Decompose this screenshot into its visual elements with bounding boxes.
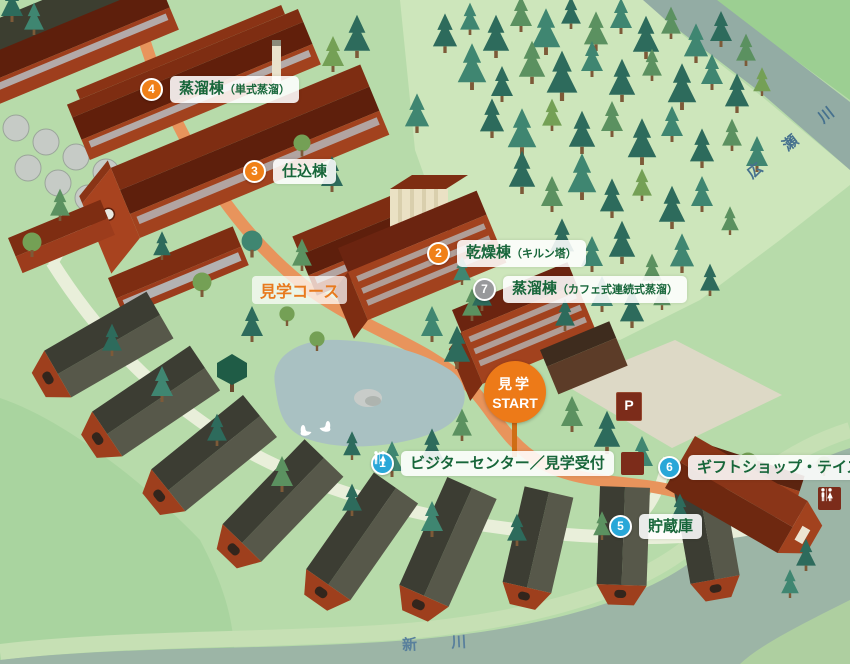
marker-7-coffey-still[interactable]: 7 蒸溜棟（カフェ式連続式蒸溜）	[473, 276, 687, 303]
marker-2-label: 乾燥棟（キルン塔）	[457, 240, 586, 267]
marker-4-label: 蒸溜棟（単式蒸溜）	[170, 76, 299, 103]
restroom-icon	[621, 452, 644, 475]
marker-3-mash-house[interactable]: 3 仕込棟	[243, 158, 336, 185]
parking-icon: P	[616, 392, 642, 421]
marker-4-number: 4	[140, 78, 163, 101]
marker-7-number: 7	[473, 278, 496, 301]
marker-2-number: 2	[427, 242, 450, 265]
marker-6-number: 6	[658, 456, 681, 479]
marker-3-label: 仕込棟	[273, 159, 336, 184]
river-label-hirose: 広 瀬 川	[742, 94, 848, 183]
start-label-line2: START	[484, 395, 546, 411]
marker-6-gift-shop[interactable]: 6 ギフトショップ・テイスティングバー	[658, 454, 850, 481]
start-label-line1: 見学	[484, 374, 546, 394]
marker-5-label: 貯蔵庫	[639, 514, 702, 539]
marker-4-still-house[interactable]: 4 蒸溜棟（単式蒸溜）	[140, 76, 299, 103]
marker-2-kiln[interactable]: 2 乾燥棟（キルン塔）	[427, 240, 586, 267]
restroom-icon	[818, 487, 841, 510]
tour-course-label: 見学コース	[252, 276, 347, 304]
marker-1-visitor-center[interactable]: 1 ビジターセンター／見学受付	[371, 450, 644, 477]
marker-6-label: ギフトショップ・テイスティングバー	[688, 455, 850, 480]
marker-7-label: 蒸溜棟（カフェ式連続式蒸溜）	[503, 276, 687, 303]
label-overlay: 広 瀬 川 新 川 見学コース 見学 START 4 蒸溜棟（単式蒸溜） 3 仕…	[0, 0, 850, 664]
marker-3-number: 3	[243, 160, 266, 183]
marker-5-storage[interactable]: 5 貯蔵庫	[609, 513, 702, 540]
river-label-nikkawa: 新 川	[402, 630, 482, 655]
marker-1-label: ビジターセンター／見学受付	[401, 451, 614, 476]
marker-5-number: 5	[609, 515, 632, 538]
tour-start-marker[interactable]: 見学 START	[484, 361, 546, 423]
distillery-tour-map: 広 瀬 川 新 川 見学コース 見学 START 4 蒸溜棟（単式蒸溜） 3 仕…	[0, 0, 850, 664]
